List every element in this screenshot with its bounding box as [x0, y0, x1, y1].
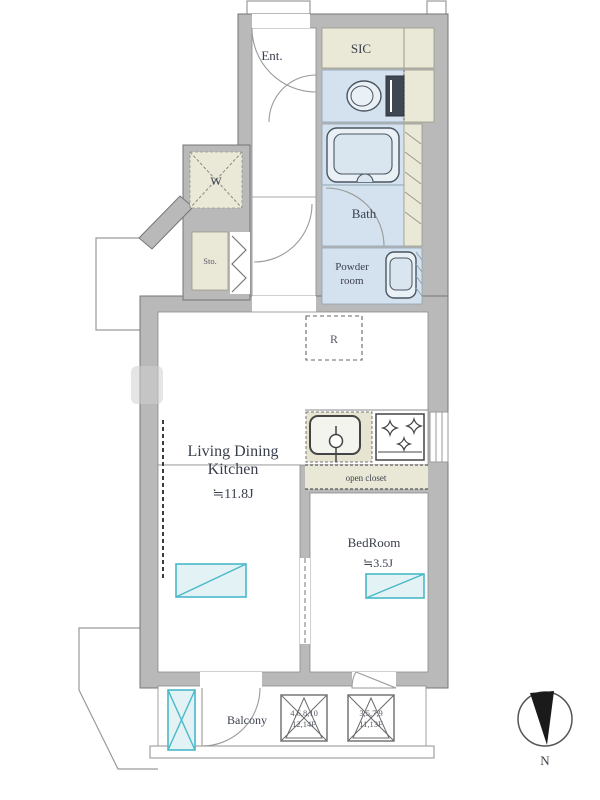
floor-plan-drawing: Ent. SIC Bath — [0, 0, 600, 800]
powder-label-1: Powder — [335, 261, 369, 273]
room-bath: Bath — [322, 124, 422, 246]
evacuation-hatch-2: 3,5,7,9 11,13F — [348, 695, 394, 741]
powder-label-2: room — [340, 275, 364, 287]
watermark-blob — [131, 366, 163, 404]
toilet-bowl-icon — [347, 81, 381, 111]
room-powder: Powder room — [322, 248, 422, 304]
entrance-door-opening — [252, 14, 310, 28]
hatch-1-floors-1: 4,6,8,10 — [290, 708, 318, 718]
compass: N — [518, 691, 572, 768]
faucet-icon — [330, 435, 343, 448]
ldk-area-label: ≒11.8J — [212, 487, 254, 502]
balcony-door-opening — [200, 672, 262, 688]
ldk-label-2: Kitchen — [208, 461, 259, 478]
sic-label: SIC — [351, 41, 371, 56]
open-closet: open closet — [305, 465, 428, 489]
stove-icon — [376, 414, 424, 460]
toilet-side — [404, 70, 434, 122]
storage-label: Sto. — [203, 256, 216, 266]
bathtub-inner — [334, 134, 392, 174]
hall-ldk-opening — [252, 296, 316, 314]
hatch-2-floors-2: 11,13F — [359, 719, 383, 729]
entrance-floor — [252, 28, 316, 296]
compass-needle-icon — [530, 691, 554, 745]
balcony-label: Balcony — [227, 713, 267, 727]
bedroom-label: BedRoom — [348, 535, 401, 550]
top-right-stub-outline — [427, 1, 446, 15]
room-entrance-hall: Ent. — [252, 14, 316, 314]
hatch-1-floors-2: 12,14F — [292, 719, 316, 729]
vanity-basin — [390, 258, 412, 290]
left-bump-outline — [96, 238, 140, 330]
refrigerator-label: R — [330, 332, 338, 346]
compass-north-label: N — [540, 753, 550, 768]
toilet-tank-icon — [386, 76, 404, 116]
bath-label: Bath — [352, 206, 377, 221]
washer-label: W — [210, 174, 222, 188]
room-toilet — [322, 70, 434, 122]
hatch-2-floors-1: 3,5,7,9 — [359, 708, 382, 718]
sic-floor — [322, 28, 434, 68]
bedroom-area-label: ≒3.5J — [363, 556, 393, 570]
floor-plan: Ent. SIC Bath — [0, 0, 600, 800]
entrance-label: Ent. — [261, 48, 282, 63]
evacuation-hatch-1: 4,6,8,10 12,14F — [281, 695, 327, 741]
kitchen-window — [430, 412, 448, 462]
corridor-outline — [247, 1, 310, 15]
room-bedroom: BedRoom ≒3.5J — [300, 493, 428, 672]
open-closet-label: open closet — [346, 473, 387, 483]
room-sic: SIC — [322, 28, 434, 68]
ldk-label-1: Living Dining — [187, 443, 278, 460]
